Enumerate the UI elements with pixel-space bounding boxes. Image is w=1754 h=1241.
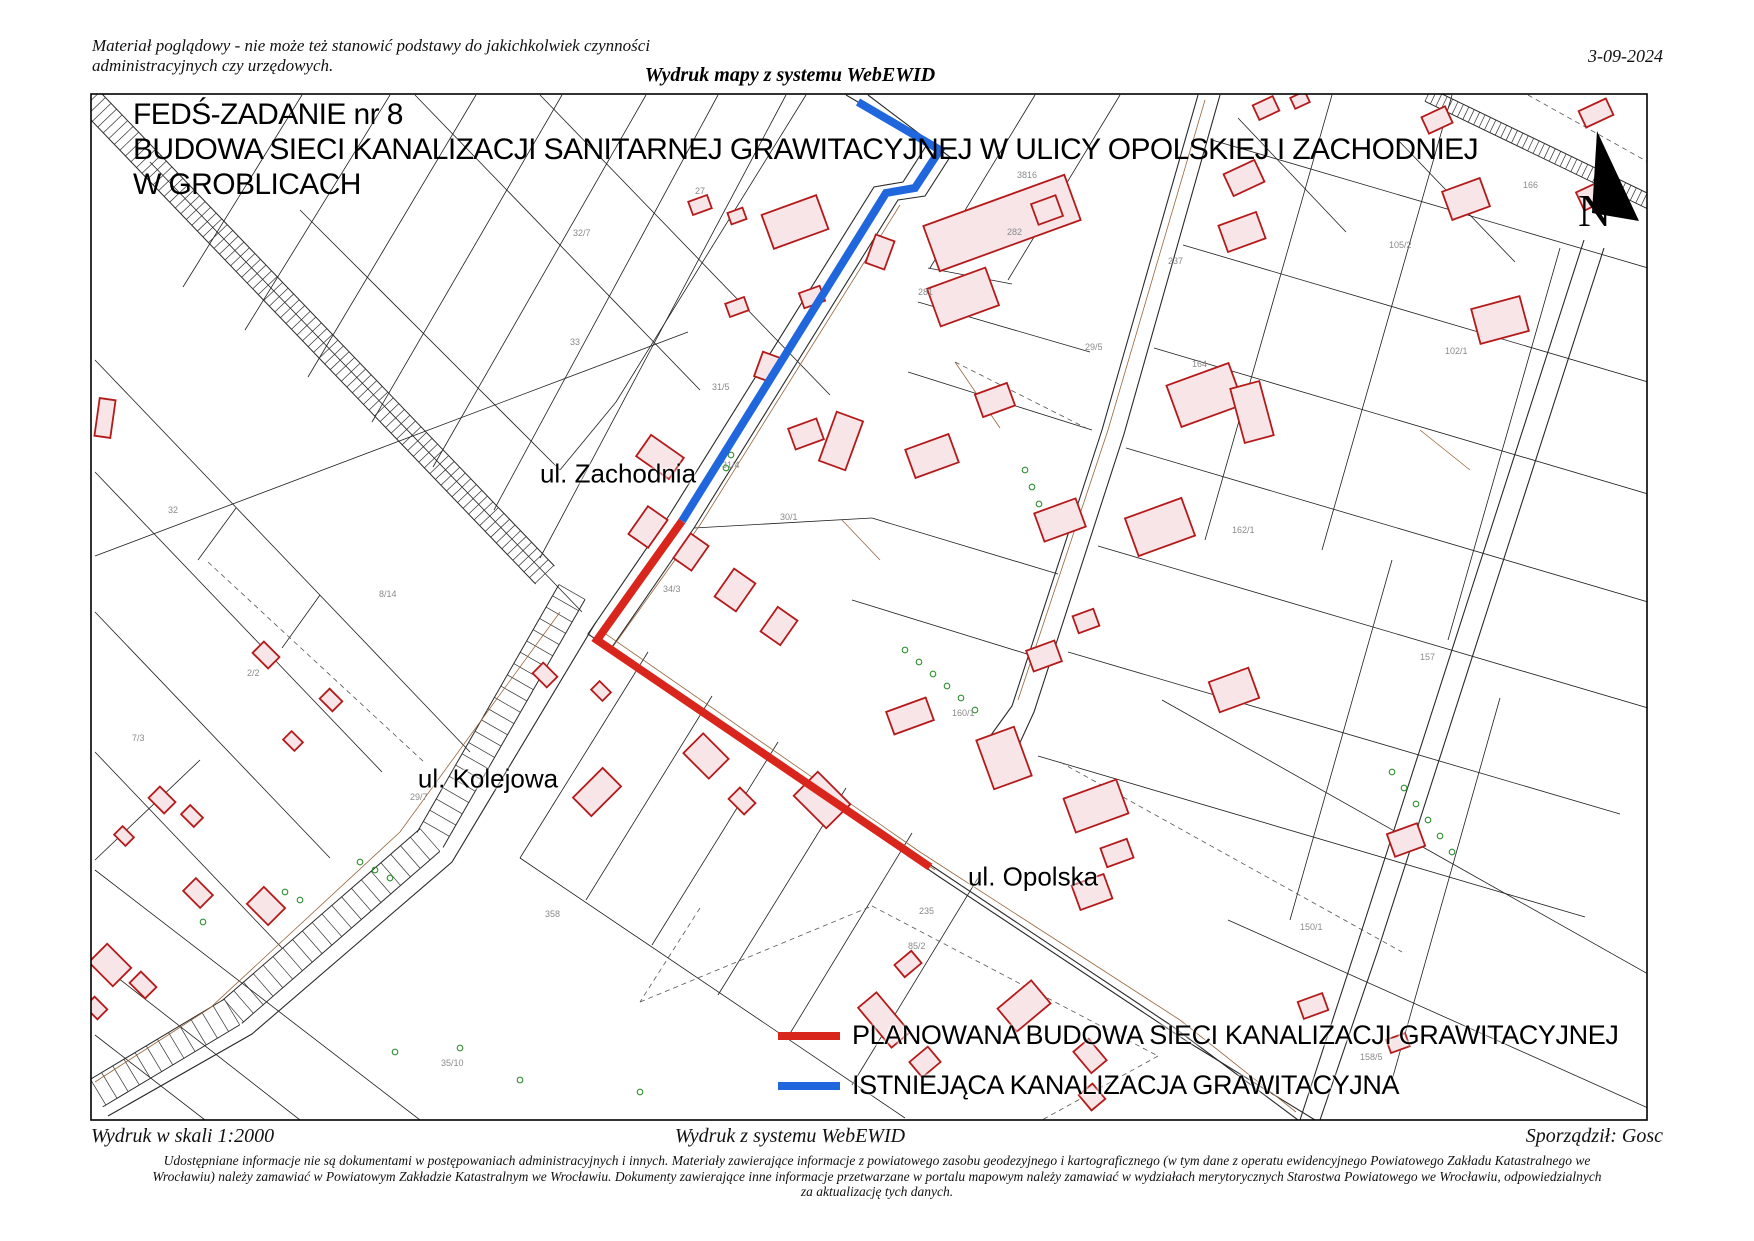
building-footprint: [729, 788, 756, 815]
railway-hatch-tick: [341, 363, 360, 381]
railway-hatch-tick: [386, 409, 405, 427]
railway-hatch-tick: [363, 386, 382, 404]
building-footprint: [573, 768, 621, 816]
tree-symbol: [902, 647, 908, 653]
utility-line: [1420, 430, 1470, 470]
tree-symbol: [200, 919, 206, 925]
building-footprint: [628, 506, 667, 548]
building-footprint: [927, 268, 999, 327]
parcel-number-label: 2/2: [247, 668, 260, 678]
railway-hatch-tick: [1560, 154, 1566, 167]
railway-hatch-tick: [325, 346, 344, 364]
railway-hatch-tick: [530, 560, 549, 578]
parcel-boundary-line: [95, 752, 282, 948]
footer-scale: Wydruk w skali 1:2000: [91, 1125, 274, 1148]
railway-hatch-tick: [391, 854, 411, 877]
utility-line: [842, 520, 880, 560]
railway-hatch-tick: [494, 697, 520, 712]
railway-hatch-tick: [463, 490, 482, 508]
railway-hatch-tick: [314, 334, 333, 352]
railway-hatch-tick: [380, 404, 399, 422]
legend-item: ISTNIEJĄCA KANALIZACJA GRAWITACYJNA: [778, 1070, 1399, 1101]
parcel-boundary-line: [786, 833, 912, 1040]
railway-hatch-tick: [169, 1033, 184, 1059]
railway-hatch-tick: [402, 427, 421, 445]
railway-hatch-tick: [1484, 117, 1490, 130]
tree-symbol: [1437, 833, 1443, 839]
railway-hatch-tick: [1528, 138, 1534, 151]
railway-hatch-tick: [87, 98, 106, 116]
building-footprint: [905, 434, 958, 478]
tree-symbol: [930, 671, 936, 677]
railway-hatch-tick: [436, 799, 462, 814]
railway-hatch-tick: [1538, 143, 1544, 156]
tree-symbol: [1413, 801, 1419, 807]
street-label: ul. Zachodnia: [540, 459, 696, 490]
tree-symbol: [357, 859, 363, 865]
railway-hatch-tick: [1549, 149, 1555, 162]
street-label: ul. Opolska: [968, 862, 1098, 893]
railway-hatch-tick: [253, 974, 273, 997]
legend-label: PLANOWANA BUDOWA SIECI KANALIZACJI GRAWI…: [852, 1020, 1618, 1051]
north-label: N: [1578, 185, 1611, 236]
footer-disclaimer: Udostępniane informacje nie są dokumenta…: [147, 1153, 1607, 1200]
railway-hatch-tick: [507, 537, 526, 555]
railway-hatch-tick: [502, 531, 521, 549]
railway-hatch-tick: [1490, 120, 1496, 133]
railway-hatch-tick: [90, 1079, 105, 1105]
parcel-number-label: 157: [1420, 652, 1435, 662]
building-footprint: [253, 642, 280, 669]
railway-hatch-tick: [293, 940, 313, 963]
building-footprint: [89, 944, 131, 986]
building-footprint: [886, 698, 934, 735]
railway-hatch-tick: [475, 731, 501, 746]
map-content: 27381628228129/523735835/1085/22353234/3…: [76, 86, 1663, 1120]
railway-hatch-tick: [481, 720, 507, 735]
tree-symbol: [1425, 817, 1431, 823]
legend-line-swatch: [778, 1082, 840, 1090]
legend-label: ISTNIEJĄCA KANALIZACJA GRAWITACYJNA: [852, 1070, 1399, 1101]
railway-hatch-tick: [1517, 133, 1523, 146]
parcel-number-label: 31/5: [712, 382, 730, 392]
railway-hatch-tick: [302, 931, 322, 954]
railway-hatch-tick: [452, 479, 471, 497]
railway-hatch-tick: [352, 375, 371, 393]
railway-hatch-tick: [430, 456, 449, 474]
railway-hatch-tick: [469, 742, 495, 757]
railway-hatch-tick: [1576, 162, 1582, 175]
parcel-boundary-line: [1038, 756, 1585, 917]
railway-hatch-tick: [430, 810, 456, 825]
railway-hatch-tick: [369, 392, 388, 410]
railway-hatch-tick: [507, 675, 533, 690]
parcel-number-label: 281: [918, 287, 933, 297]
railway-hatch-tick: [1522, 136, 1528, 149]
building-footprint: [85, 997, 108, 1020]
parcel-number-label: 7/3: [132, 733, 145, 743]
railway-hatch-tick: [496, 525, 515, 543]
watermark-title: Wydruk mapy z systemu WebEWID: [540, 64, 1040, 87]
railway-hatch-tick: [540, 618, 566, 633]
railway-hatch-tick: [527, 641, 553, 656]
railway-hatch-tick: [283, 948, 303, 971]
parcel-number-label: 33: [570, 337, 580, 347]
building-footprint: [975, 383, 1015, 417]
parcel-number-label: 8/14: [379, 589, 397, 599]
parcel-boundary-line: [95, 472, 382, 772]
building-footprint: [1387, 823, 1425, 856]
railway-hatch-tick: [491, 519, 510, 537]
utility-line: [95, 612, 560, 1082]
railway-hatch-tick: [423, 821, 449, 836]
parcel-boundary-line: [198, 508, 236, 560]
building-footprint: [1100, 839, 1133, 867]
parcel-number-label: 32: [168, 505, 178, 515]
railway-hatch-tick: [92, 103, 111, 121]
dashed-parcel-line: [1528, 95, 1648, 162]
building-footprint: [114, 826, 134, 846]
railway-edge-line: [443, 599, 585, 847]
parcel-number-label: 102/1: [1445, 346, 1468, 356]
building-footprint: [247, 887, 285, 925]
railway-hatch-tick: [518, 548, 537, 566]
railway-hatch-tick: [441, 467, 460, 485]
railway-hatch-tick: [135, 1053, 150, 1079]
building-footprint: [149, 787, 176, 814]
building-footprint: [1218, 212, 1265, 252]
railway-hatch-tick: [1495, 123, 1501, 136]
building-footprint: [715, 569, 756, 612]
parcel-boundary-line: [150, 162, 582, 612]
tree-symbol: [637, 1089, 643, 1095]
railway-hatch-tick: [202, 1012, 217, 1038]
building-footprint: [183, 878, 213, 908]
railway-hatch-tick: [98, 109, 117, 127]
building-footprint: [725, 297, 749, 317]
building-footprint: [762, 195, 829, 249]
railway-hatch-tick: [371, 871, 391, 894]
railway-hatch-tick: [420, 829, 440, 852]
map-title-line2: BUDOWA SIECI KANALIZACJI SANITARNEJ GRAW…: [133, 132, 1478, 167]
railway-hatch-tick: [273, 957, 293, 980]
building-footprint: [1471, 296, 1529, 344]
tree-symbol: [958, 695, 964, 701]
tree-symbol: [392, 1049, 398, 1055]
railway-hatch-tick: [485, 513, 504, 531]
railway-hatch-tick: [1506, 128, 1512, 141]
railway-hatch-tick: [244, 982, 264, 1005]
building-footprint: [727, 208, 746, 225]
railway-hatch-tick: [419, 444, 438, 462]
parcel-number-label: 85/2: [908, 941, 926, 951]
parcel-boundary-line: [95, 332, 688, 556]
railway-hatch-tick: [535, 565, 554, 583]
railway-hatch-tick: [113, 1066, 128, 1092]
parcel-boundary-line: [95, 960, 300, 1120]
tree-symbol: [387, 875, 393, 881]
tree-symbol: [282, 889, 288, 895]
building-footprint: [1230, 381, 1273, 443]
print-date: 3-09-2024: [1463, 46, 1663, 67]
railway-hatch-tick: [513, 542, 532, 560]
dashed-parcel-line: [640, 908, 700, 1002]
railway-hatch-tick: [524, 554, 543, 572]
parcel-number-label: 164: [1192, 359, 1207, 369]
building-footprint: [865, 234, 894, 269]
railway-hatch-tick: [401, 846, 421, 869]
railway-hatch-tick: [347, 369, 366, 387]
building-footprint: [673, 533, 708, 570]
road-edge-line: [108, 622, 596, 1116]
railway-hatch-tick: [336, 357, 355, 375]
building-footprint: [683, 733, 728, 778]
header-disclaimer-line1: Materiał poglądowy - nie może też stanow…: [92, 36, 792, 56]
parcel-number-label: 158/5: [1360, 1052, 1383, 1062]
railway-hatch-tick: [533, 630, 559, 645]
parcel-number-label: 160/1: [952, 708, 975, 718]
building-footprint: [1298, 993, 1329, 1019]
railway-hatch-tick: [480, 508, 499, 526]
railway-hatch-tick: [1533, 141, 1539, 154]
parcel-boundary-line: [282, 595, 320, 648]
railway-hatch-tick: [474, 502, 493, 520]
tree-symbol: [1036, 501, 1042, 507]
parcel-number-label: 34/3: [663, 584, 681, 594]
railway-hatch-tick: [1571, 159, 1577, 172]
railway-hatch-tick: [146, 1046, 161, 1072]
railway-hatch-tick: [180, 1026, 195, 1052]
building-footprint: [1064, 780, 1129, 833]
tree-symbol: [297, 897, 303, 903]
building-footprint: [283, 731, 303, 751]
parcel-number-label: 166: [1523, 180, 1538, 190]
railway-hatch-tick: [1582, 164, 1588, 177]
tree-symbol: [1401, 785, 1407, 791]
railway-hatch-tick: [308, 329, 327, 347]
railway-hatch-tick: [322, 914, 342, 937]
building-footprint: [181, 805, 203, 827]
railway-hatch-tick: [361, 880, 381, 903]
railway-hatch-tick: [553, 596, 579, 611]
parcel-number-label: 358: [545, 909, 560, 919]
railway-edge-line: [417, 585, 559, 833]
building-footprint: [819, 412, 863, 470]
dashed-parcel-line: [640, 906, 872, 1002]
railway-hatch-tick: [312, 922, 332, 945]
legend-line-swatch: [778, 1032, 840, 1040]
tree-symbol: [944, 683, 950, 689]
building-footprint: [130, 972, 157, 999]
railway-hatch-tick: [469, 496, 488, 514]
parcel-number-label: 105/2: [1389, 240, 1412, 250]
parcel-boundary-line: [1183, 245, 1648, 382]
railway-hatch-tick: [358, 381, 377, 399]
railway-hatch-tick: [1479, 115, 1485, 128]
railway-hatch-tick: [458, 485, 477, 503]
railway-hatch-tick: [103, 115, 122, 133]
railway-hatch-tick: [1652, 198, 1658, 211]
railway-hatch-tick: [109, 121, 128, 139]
building-footprint: [761, 607, 798, 645]
parcel-number-label: 150/1: [1300, 922, 1323, 932]
parcel-number-label: 282: [1007, 227, 1022, 237]
road-edge-line: [1300, 240, 1584, 1120]
railway-hatch-tick: [381, 863, 401, 886]
parcel-number-label: 30/1: [780, 512, 798, 522]
footer-system: Wydruk z systemu WebEWID: [540, 1125, 1040, 1148]
railway-hatch-tick: [213, 1006, 228, 1032]
tree-symbol: [1389, 769, 1395, 775]
railway-hatch-tick: [1501, 125, 1507, 138]
railway-hatch-tick: [435, 461, 454, 479]
railway-hatch-tick: [224, 999, 239, 1025]
parcel-boundary-line: [300, 210, 560, 470]
parcel-boundary-line: [872, 518, 1058, 574]
webewid-map-printout: 27381628228129/523735835/1085/22353234/3…: [0, 0, 1754, 1241]
railway-hatch-tick: [342, 897, 362, 920]
parcel-number-label: 237: [1168, 256, 1183, 266]
tree-symbol: [1449, 849, 1455, 855]
parcel-number-label: 235: [919, 906, 934, 916]
map-title: FEDŚ-ZADANIE nr 8 BUDOWA SIECI KANALIZAC…: [133, 97, 1478, 202]
railway-hatch-tick: [488, 709, 514, 724]
legend-item: PLANOWANA BUDOWA SIECI KANALIZACJI GRAWI…: [778, 1020, 1618, 1051]
parcel-boundary-line: [1290, 560, 1392, 920]
tree-symbol: [1029, 484, 1035, 490]
railway-hatch-tick: [332, 905, 352, 928]
map-frame: [91, 94, 1647, 1120]
street-label: ul. Kolejowa: [418, 764, 558, 795]
railway-hatch-tick: [1555, 151, 1561, 164]
building-footprint: [894, 951, 921, 977]
building-footprint: [591, 681, 611, 701]
railway-hatch-tick: [391, 415, 410, 433]
footer-author: Sporządził: Gosc: [1363, 1125, 1663, 1148]
map-title-line3: W GROBLICACH: [133, 167, 1478, 202]
parcel-number-label: 35/10: [441, 1058, 464, 1068]
railway-hatch-tick: [408, 433, 427, 451]
railway-hatch-tick: [114, 126, 133, 144]
railway-hatch-tick: [1587, 167, 1593, 180]
tree-symbol: [728, 452, 734, 458]
map-title-line1: FEDŚ-ZADANIE nr 8: [133, 97, 1478, 132]
railway-hatch-tick: [330, 352, 349, 370]
building-footprint: [94, 398, 115, 438]
building-footprint: [1073, 609, 1100, 633]
building-footprint: [320, 689, 343, 712]
planned-sewer-line: [597, 521, 930, 867]
railway-hatch-tick: [157, 1039, 172, 1065]
parcel-boundary-line: [852, 600, 1040, 658]
railway-hatch-tick: [224, 999, 244, 1022]
building-footprint: [788, 419, 824, 450]
railway-hatch-tick: [413, 438, 432, 456]
parcel-number-label: 162/1: [1232, 525, 1255, 535]
parcel-boundary-line: [852, 878, 978, 1085]
railway-hatch-tick: [546, 607, 572, 622]
railway-hatch-tick: [410, 837, 430, 860]
tree-symbol: [1022, 467, 1028, 473]
railway-hatch-tick: [234, 991, 254, 1014]
railway-hatch-tick: [375, 398, 394, 416]
building-footprint: [1579, 99, 1614, 128]
railway-hatch-tick: [446, 473, 465, 491]
railway-hatch-tick: [1630, 188, 1636, 201]
parcel-number-label: 31/4: [722, 460, 740, 470]
parcel-boundary-line: [520, 652, 648, 858]
railway-hatch-tick: [1511, 130, 1517, 143]
building-footprint: [1125, 498, 1195, 556]
tree-symbol: [457, 1045, 463, 1051]
railway-hatch-tick: [1565, 157, 1571, 170]
parcel-boundary-line: [1068, 652, 1620, 814]
tree-symbol: [517, 1077, 523, 1083]
railway-hatch-tick: [1636, 190, 1642, 203]
railway-hatch-tick: [1544, 146, 1550, 159]
tree-symbol: [916, 659, 922, 665]
utility-line: [612, 205, 935, 870]
parcel-number-label: 29/5: [1085, 342, 1103, 352]
railway-hatch-tick: [351, 888, 371, 911]
road-edge-line: [1320, 248, 1604, 1120]
parcel-number-label: 32/7: [573, 228, 591, 238]
railway-hatch-tick: [263, 965, 283, 988]
